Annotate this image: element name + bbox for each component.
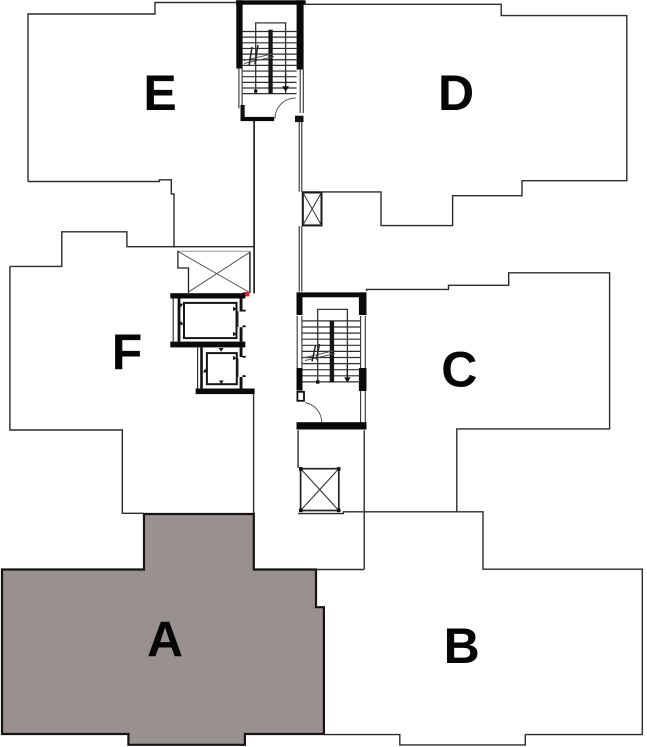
svg-text:B: B <box>444 618 480 674</box>
svg-text:D: D <box>438 65 474 121</box>
svg-text:E: E <box>143 65 176 121</box>
svg-text:C: C <box>441 342 477 398</box>
svg-text:A: A <box>147 612 183 668</box>
svg-text:F: F <box>112 324 143 380</box>
